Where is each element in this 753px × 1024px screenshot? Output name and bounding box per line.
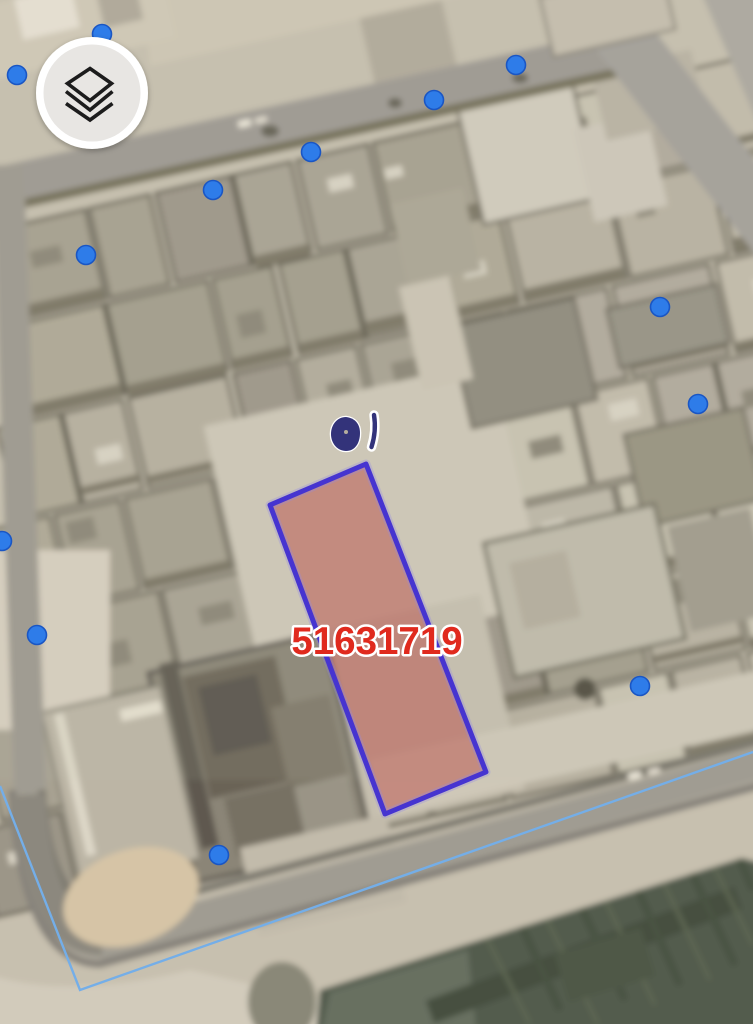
svg-text:51631719: 51631719 (291, 620, 462, 663)
